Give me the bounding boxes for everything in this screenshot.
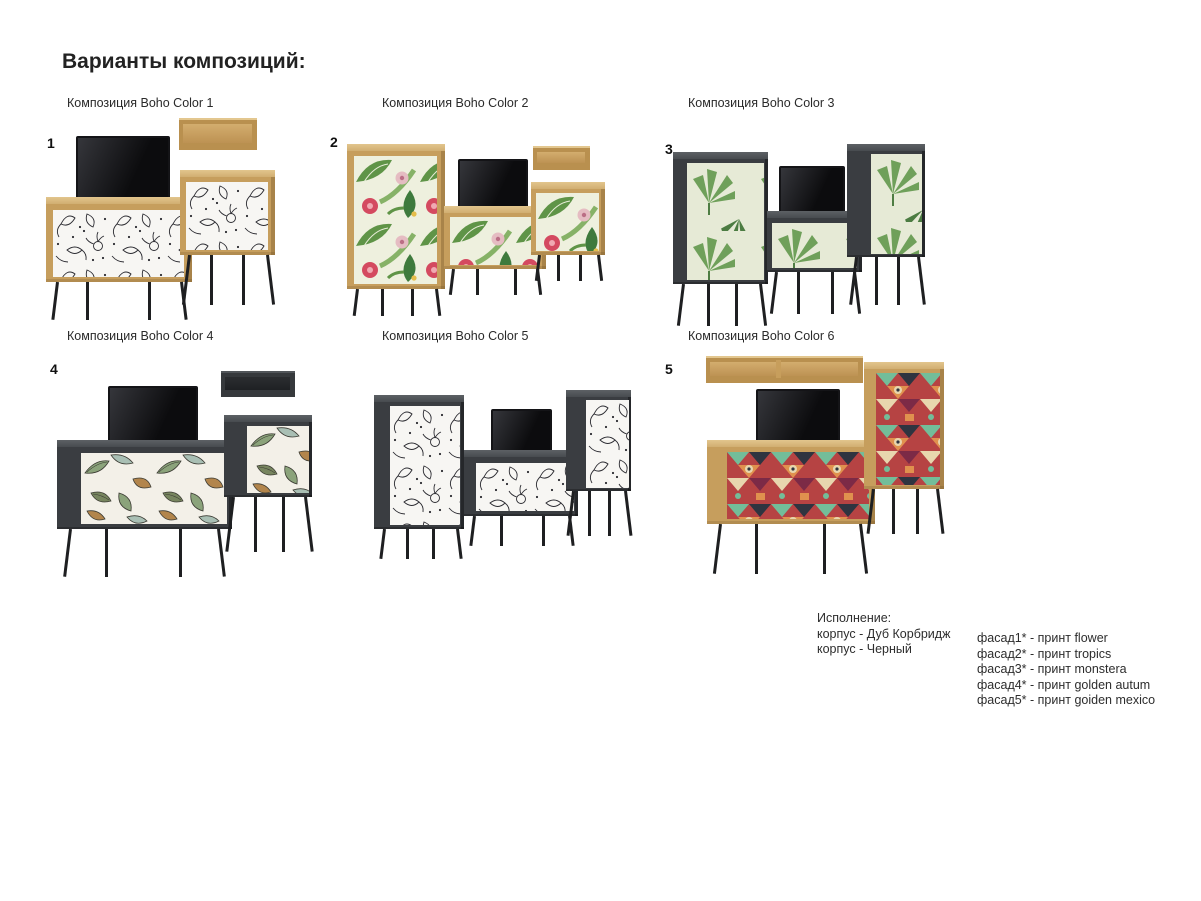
comp2-wall-shelf — [533, 146, 590, 170]
legend-facade-line-5: фасад5* - принт goiden mexico — [977, 693, 1155, 709]
comp2-wall-shelf-back — [537, 152, 585, 163]
monstera-print-facade — [772, 223, 857, 268]
flower-print-facade — [476, 463, 574, 511]
flower-print-facade — [53, 210, 184, 277]
legend-title: Исполнение: — [817, 611, 950, 627]
composition-caption-2: Композиция Boho Color 2 — [382, 96, 528, 110]
comp4-tv-stand-front — [57, 447, 232, 529]
comp4-cabinet-top — [224, 415, 312, 422]
comp5-tv-stand-front — [464, 457, 578, 516]
comp1-wall-shelf — [179, 118, 257, 150]
comp3-tall-cabinet-left-legs — [673, 284, 768, 326]
monstera-print-facade — [687, 163, 764, 280]
comp6-tall-cabinet-front — [864, 369, 944, 489]
comp4-tv-stand-legs — [57, 529, 232, 577]
legend-facades: фасад1* - принт flower фасад2* - принт t… — [977, 631, 1155, 709]
comp6-tv-stand-top — [707, 440, 875, 447]
tropics-print-facade — [536, 193, 599, 251]
tropics-print-facade — [354, 156, 437, 284]
golden-autumn-print-facade — [247, 426, 309, 493]
comp1-cabinet-legs — [180, 255, 275, 305]
comp2-tv — [458, 159, 528, 211]
comp1-tv-stand-top — [46, 197, 192, 204]
comp1-cabinet-front — [180, 177, 275, 255]
comp6-wall-shelf-divider — [776, 360, 781, 378]
comp2-cabinet-top — [531, 182, 605, 189]
comp5-tv-stand-legs — [464, 516, 578, 546]
comp5-tall-cabinet-right-top — [566, 390, 631, 397]
catalog-page: Варианты композиций: Композиция Boho Col… — [0, 0, 1201, 901]
comp3-tall-cabinet-left-top — [673, 152, 768, 159]
composition-number-1: 1 — [47, 135, 55, 151]
comp1-tv-stand-legs — [46, 282, 192, 320]
legend-facade-line-3: фасад3* - принт monstera — [977, 662, 1155, 678]
legend-execution: Исполнение: корпус - Дуб Корбридж корпус… — [817, 611, 950, 658]
comp1-wall-shelf-back — [183, 124, 252, 143]
comp4-wall-shelf — [221, 371, 295, 397]
composition-caption-5: Композиция Boho Color 5 — [382, 329, 528, 343]
comp4-cabinet-front — [224, 422, 312, 497]
composition-caption-4: Композиция Boho Color 4 — [67, 329, 213, 343]
golden-autumn-print-facade — [81, 453, 227, 524]
comp6-tv-stand-front — [707, 447, 875, 524]
flower-print-facade — [586, 400, 629, 488]
comp5-tall-cabinet-left-legs — [374, 529, 464, 559]
comp5-tall-cabinet-right-legs — [566, 491, 631, 536]
golden-mexico-print-facade — [727, 452, 869, 519]
composition-number-4: 4 — [50, 361, 58, 377]
comp1-cabinet-top — [180, 170, 275, 177]
composition-caption-6: Композиция Boho Color 6 — [688, 329, 834, 343]
comp6-tall-cabinet-legs — [864, 489, 944, 534]
comp6-wall-shelf — [706, 356, 863, 383]
comp5-tall-cabinet-left-top — [374, 395, 464, 402]
monstera-print-facade — [871, 154, 922, 254]
legend-facade-line-2: фасад2* - принт tropics — [977, 647, 1155, 663]
composition-number-2: 2 — [330, 134, 338, 150]
comp4-tv-stand-top — [57, 440, 232, 447]
comp2-cabinet-front — [531, 189, 605, 255]
comp4-cabinet-legs — [224, 497, 312, 552]
comp6-tall-cabinet-top — [864, 362, 944, 369]
comp1-tv — [76, 136, 170, 206]
tropics-print-facade — [450, 217, 539, 265]
comp6-tv-stand-legs — [707, 524, 875, 574]
comp3-tall-cabinet-right-front — [847, 151, 925, 257]
comp3-tall-cabinet-right-legs — [847, 257, 925, 305]
composition-caption-3: Композиция Boho Color 3 — [688, 96, 834, 110]
comp2-tall-cabinet-front — [347, 151, 445, 289]
flower-print-facade — [390, 406, 460, 525]
comp6-wall-shelf-back — [710, 362, 858, 376]
comp2-cabinet-legs — [531, 255, 605, 281]
comp2-tall-cabinet-legs — [347, 289, 445, 316]
legend-body-line-1: корпус - Дуб Корбридж — [817, 627, 950, 643]
legend-facade-line-1: фасад1* - принт flower — [977, 631, 1155, 647]
composition-number-6: 5 — [665, 361, 673, 377]
comp5-tall-cabinet-left-front — [374, 402, 464, 529]
comp3-tall-cabinet-right-top — [847, 144, 925, 151]
comp5-tall-cabinet-right-front — [566, 397, 631, 491]
golden-mexico-print-facade — [876, 373, 940, 485]
comp4-wall-shelf-back — [225, 377, 290, 390]
comp1-tv-stand-front — [46, 204, 192, 282]
comp3-tall-cabinet-left-front — [673, 159, 768, 284]
comp3-tv — [779, 166, 845, 216]
flower-print-facade — [186, 182, 268, 250]
composition-number-3: 3 — [665, 141, 673, 157]
page-title: Варианты композиций: — [62, 50, 306, 74]
comp2-tall-cabinet-top — [347, 144, 445, 151]
legend-facade-line-4: фасад4* - принт golden autum — [977, 678, 1155, 694]
legend-body-line-2: корпус - Черный — [817, 642, 950, 658]
composition-caption-1: Композиция Boho Color 1 — [67, 96, 213, 110]
comp5-tv-stand-top — [464, 450, 578, 457]
